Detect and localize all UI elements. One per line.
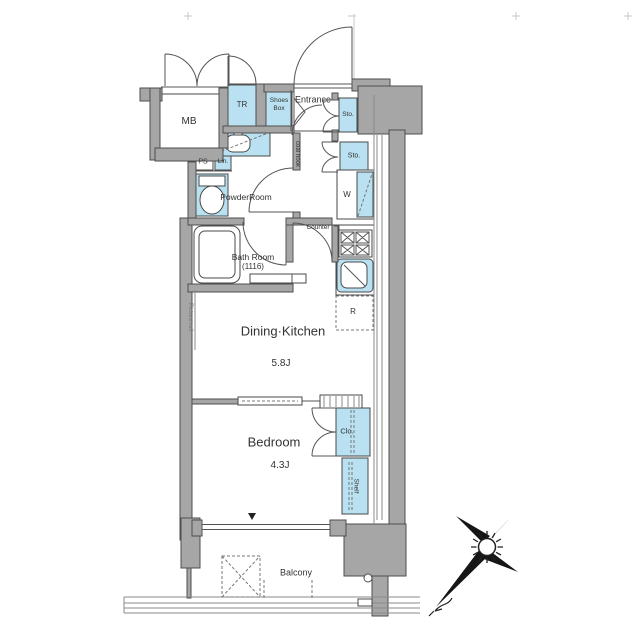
entrance-door (294, 27, 352, 85)
mb-door-right (197, 54, 229, 86)
washer-label: W (343, 191, 351, 199)
linen-label: Lin. (218, 159, 228, 166)
dining-kitchen-size: 5.8J (272, 359, 291, 369)
washbasin-bowl (226, 135, 250, 152)
coat-hook-label: coat hook (294, 141, 300, 167)
storage-lower-label: Sto. (348, 153, 360, 160)
picture-rail-label: Picture rail (187, 303, 193, 331)
compass-tail (429, 598, 452, 616)
bath-ledge (250, 274, 306, 283)
balcony-label: Balcony (280, 569, 312, 578)
rail-box (358, 599, 372, 606)
bedroom-label: Bedroom (248, 436, 301, 449)
drain (364, 574, 372, 582)
bath-room-label: Bath Room (232, 253, 275, 262)
window-lines (202, 522, 330, 532)
trunk-room-label: TR (237, 101, 248, 109)
compass-icon (429, 508, 520, 616)
shoes-box-label-1: Shoes (270, 98, 288, 105)
toilet-tank (199, 176, 225, 186)
refrigerator-label: R (350, 308, 356, 316)
sliding-door-pocket (320, 395, 362, 408)
closet-doors (312, 408, 336, 456)
bath-room-size: (1116) (242, 263, 264, 271)
walls (140, 79, 422, 616)
pipe-space-label: PS (198, 159, 207, 166)
storage-lower-door (322, 142, 338, 172)
entrance-label: Entrance (295, 96, 331, 105)
shaft-lines (377, 135, 382, 520)
bedroom-size: 4.3J (271, 461, 290, 471)
closet-label: Clo. (340, 427, 353, 435)
shelf-label: Shelf (352, 479, 359, 494)
shoes-box-label-2: Box (273, 106, 284, 113)
dining-kitchen-label: Dining·Kitchen (241, 325, 326, 338)
tr-door (228, 56, 256, 84)
window-center-mark (248, 513, 256, 520)
bathtub-inner (199, 231, 235, 278)
powder-room-door (249, 168, 293, 212)
meter-box-label: MB (182, 117, 197, 127)
counter-label: Counter (306, 225, 329, 232)
storage-upper-label: Sto. (342, 112, 354, 119)
powder-room-label: PowderRoom (220, 193, 272, 202)
floor-plan: MB TR Shoes Box Entrance Sto. Sto. W PS … (0, 0, 640, 640)
mb-door-left (165, 54, 197, 86)
storage-upper-door (323, 100, 339, 132)
